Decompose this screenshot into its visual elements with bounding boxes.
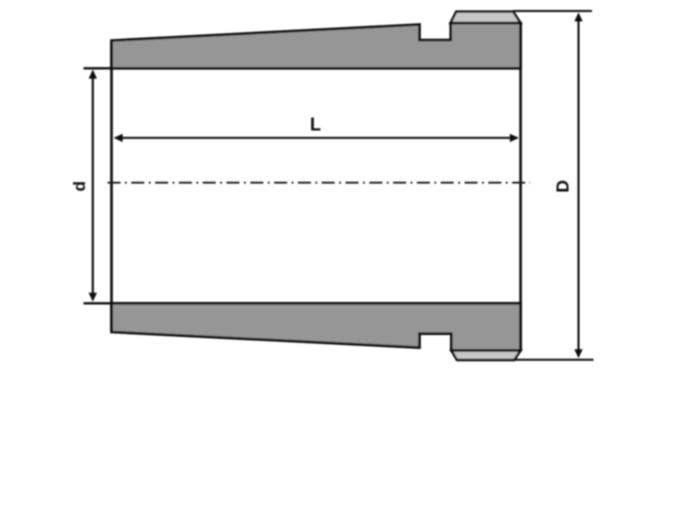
- svg-text:L: L: [310, 115, 321, 135]
- svg-text:D: D: [553, 180, 573, 193]
- svg-text:d: d: [70, 181, 89, 191]
